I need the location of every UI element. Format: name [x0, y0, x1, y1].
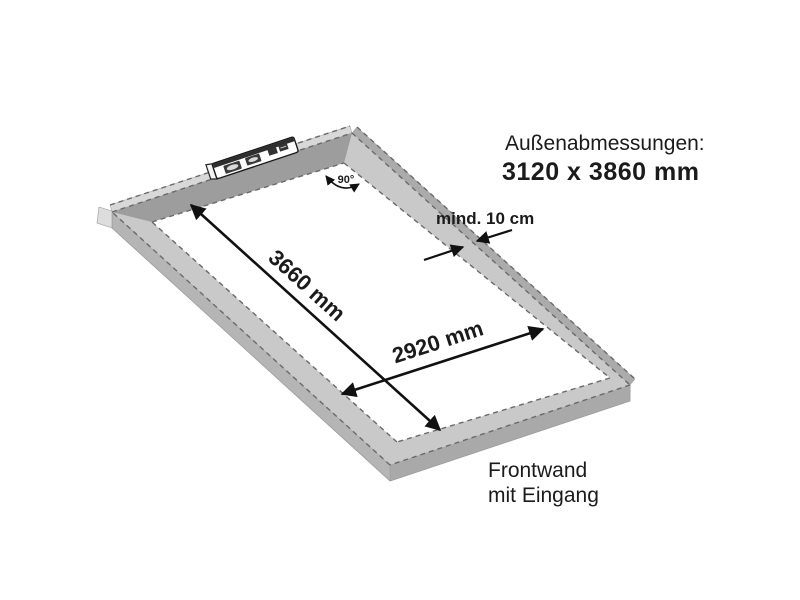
clearance-label: mind. 10 cm	[436, 209, 534, 228]
foundation-frame-diagram: 90° 3660 mm 2920 mm mind. 10 cm Außenabm…	[0, 0, 800, 600]
front-wall-label-line2: mit Eingang	[488, 484, 599, 507]
clearance-arrow-upper	[477, 230, 512, 241]
angle-label: 90°	[338, 174, 355, 186]
front-wall-label-line1: Frontwand	[488, 459, 587, 482]
frame-end-cap	[97, 207, 112, 228]
diagram-canvas: 90° 3660 mm 2920 mm mind. 10 cm Außenabm…	[0, 0, 800, 600]
outer-dimensions-caption: Außenabmessungen:	[505, 132, 705, 155]
outer-dimensions-value: 3120 x 3860 mm	[502, 158, 699, 186]
